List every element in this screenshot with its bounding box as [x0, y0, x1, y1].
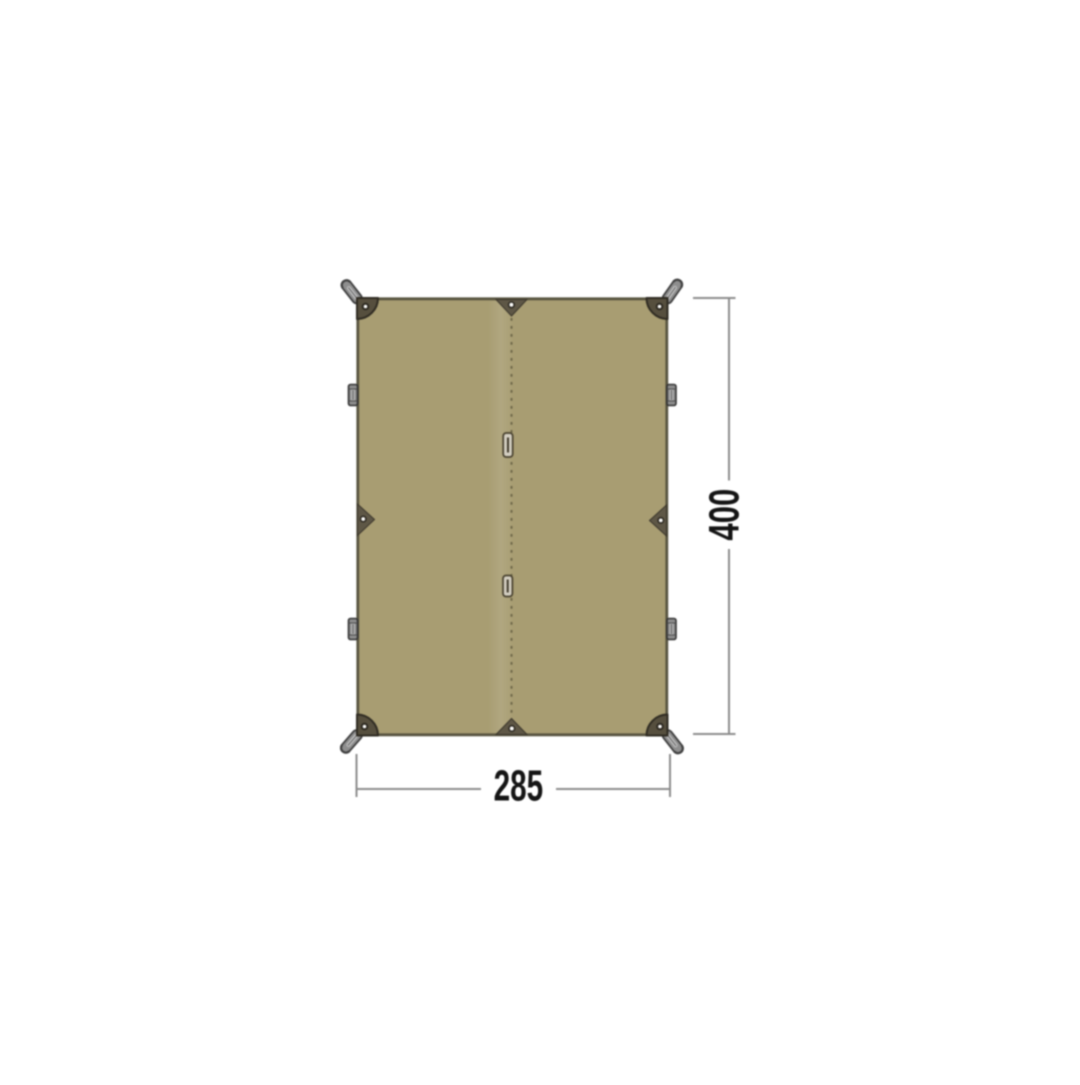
svg-text:285: 285 [494, 763, 544, 811]
svg-text:400: 400 [701, 489, 748, 541]
